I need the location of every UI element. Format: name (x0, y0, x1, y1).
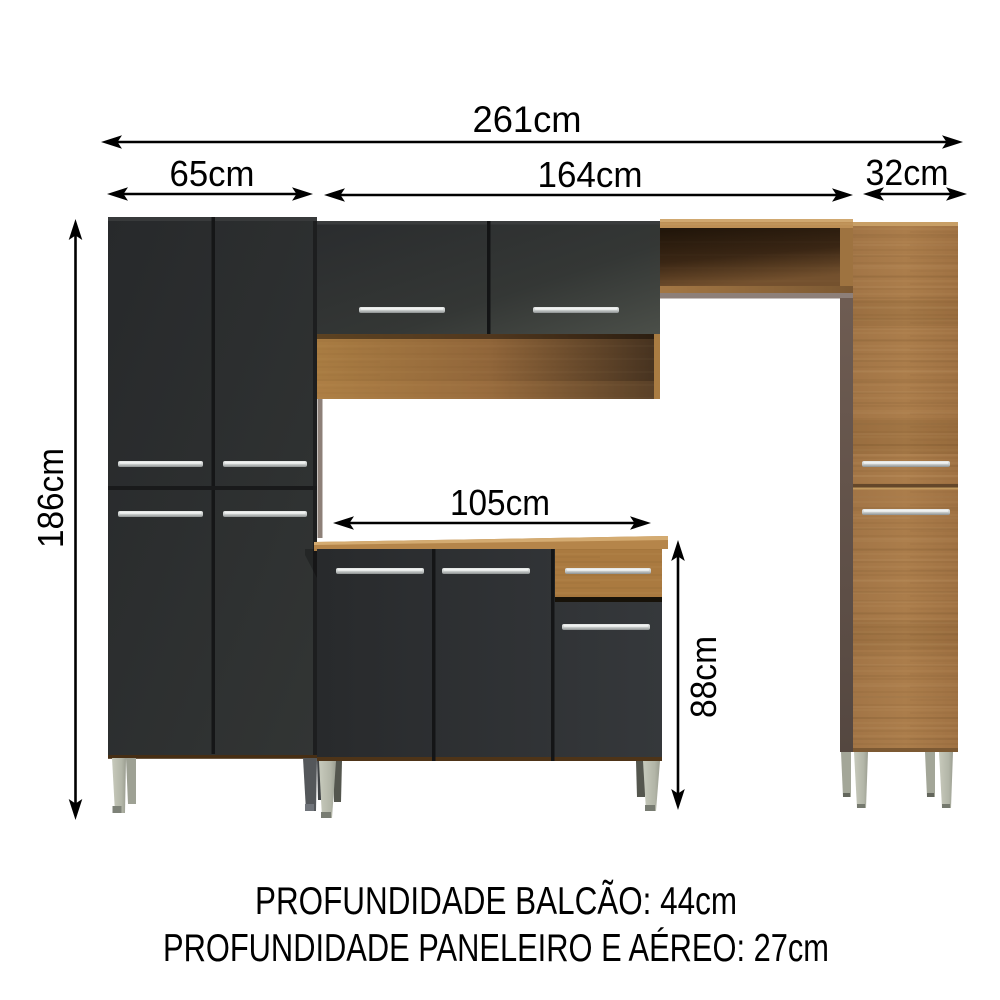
svg-text:164cm: 164cm (538, 154, 643, 195)
svg-text:261cm: 261cm (473, 99, 582, 140)
svg-text:PROFUNDIDADE BALCÃO: 44cm: PROFUNDIDADE BALCÃO: 44cm (255, 880, 737, 923)
svg-text:88cm: 88cm (683, 636, 724, 718)
svg-text:105cm: 105cm (450, 482, 550, 523)
svg-text:186cm: 186cm (30, 448, 71, 548)
svg-text:32cm: 32cm (866, 152, 949, 193)
svg-text:65cm: 65cm (170, 153, 255, 194)
svg-text:PROFUNDIDADE PANELEIRO E AÉREO: PROFUNDIDADE PANELEIRO E AÉREO: 27cm (163, 927, 829, 970)
